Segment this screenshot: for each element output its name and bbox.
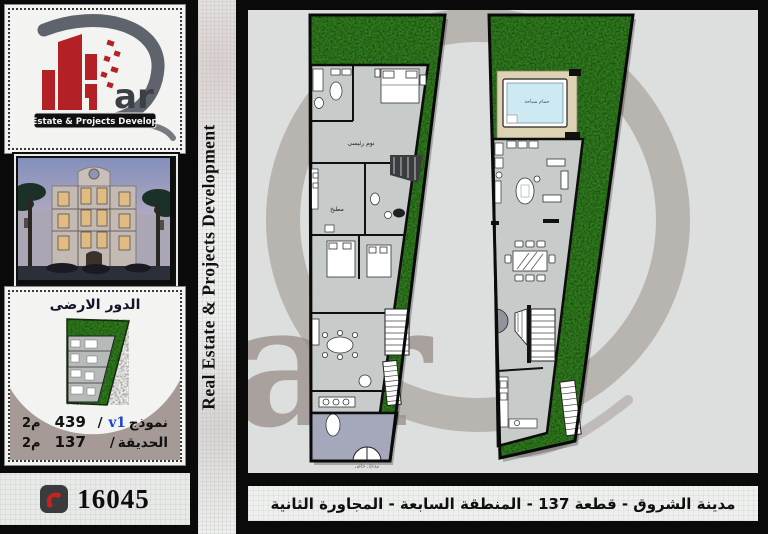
building-render-image: [18, 158, 170, 280]
brochure-page: ar Real Estate & Projects Development: [0, 0, 768, 534]
label-pool: حمام سباحة: [524, 99, 549, 105]
caption-strip: مدينة الشروق - قطعة 137 - المنطقة السابع…: [248, 486, 758, 521]
sidebar: ar Real Estate & Projects Development: [0, 0, 190, 534]
left-floor-plan: نوم رئيسى مطبخ: [295, 13, 465, 468]
site-data-rows: نموذج v1 / 439 م2 الحديقة / 137 م2: [10, 412, 180, 452]
plans-canvas: ar: [248, 10, 758, 473]
company-logo-icon: ar Real Estate & Projects Development: [10, 10, 176, 144]
model-slash: /: [98, 415, 103, 431]
building-photo-panel: [16, 156, 176, 286]
garden-slash: /: [110, 435, 115, 451]
logo-banner-text: Real Estate & Projects Development: [10, 117, 176, 127]
label-private-entrance: مدخل خاص: [355, 464, 380, 469]
logo-panel: ar Real Estate & Projects Development: [8, 8, 182, 150]
model-area-unit: م2: [22, 416, 41, 431]
location-caption: مدينة الشروق - قطعة 137 - المنطقة السابع…: [271, 495, 736, 513]
phone-number: 16045: [77, 484, 150, 515]
model-row: نموذج v1 / 439 م2: [10, 412, 180, 432]
model-label: نموذج: [129, 415, 168, 431]
phone-badge: [40, 485, 68, 513]
right-floor-plan: حمام سباحة: [485, 13, 645, 463]
label-master-bedroom: نوم رئيسى: [347, 140, 374, 147]
label-kitchen: مطبخ: [330, 206, 344, 213]
garden-area-unit: م2: [22, 436, 41, 451]
site-thumbnail: [43, 316, 147, 408]
vertical-banner: Real Estate & Projects Development: [190, 0, 248, 534]
garden-row: الحديقة / 137 م2: [10, 432, 180, 452]
main-area: ar: [248, 0, 768, 534]
vertical-banner-text: Real Estate & Projects Development: [199, 124, 220, 409]
phone-icon: [44, 489, 64, 509]
garden-label: الحديقة: [118, 435, 168, 451]
site-panel-title: الدور الارضى: [10, 297, 180, 313]
model-area-value: 439: [55, 413, 86, 431]
garden-area-value: 137: [55, 433, 86, 451]
model-code: v1: [109, 415, 126, 431]
phone-strip: 16045: [0, 473, 190, 525]
site-panel: الدور الارضى نموذج v1: [8, 290, 182, 462]
logo-ar-text: ar: [114, 77, 154, 117]
